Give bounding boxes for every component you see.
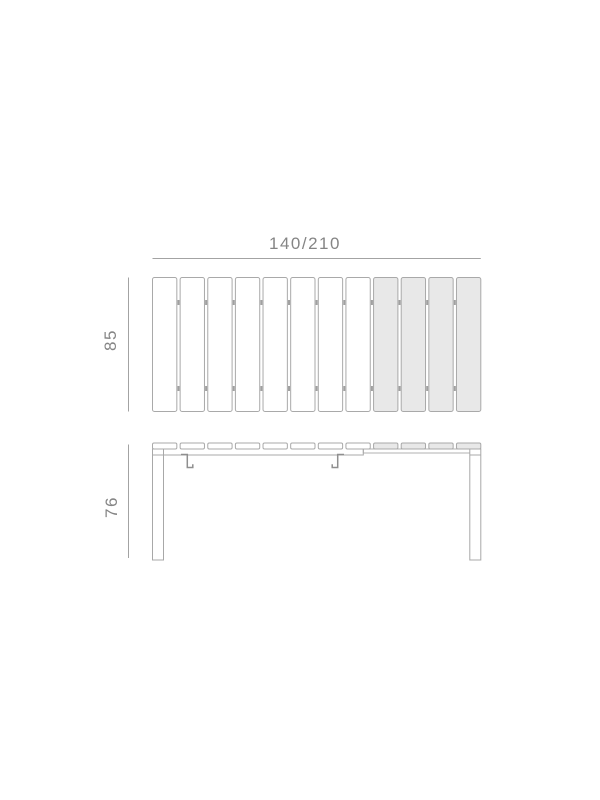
slat-fixed	[263, 443, 287, 449]
slat-joint-tick	[343, 386, 345, 391]
slat-joint-tick	[454, 386, 456, 391]
right-leg	[470, 449, 481, 560]
extension-rail	[363, 449, 470, 453]
left-leg	[153, 449, 164, 560]
slat-fixed	[318, 278, 342, 412]
slat-extension	[429, 443, 453, 449]
dimension-drawing	[0, 0, 600, 800]
slat-extension	[401, 278, 425, 412]
side-view-slat-edge	[153, 443, 481, 449]
slat-joint-tick	[316, 386, 318, 391]
slat-fixed	[235, 278, 259, 412]
slat-joint-tick	[399, 386, 401, 391]
slat-extension	[401, 443, 425, 449]
slat-fixed	[208, 443, 232, 449]
top-view-slats	[153, 278, 481, 412]
slat-joint-tick	[205, 386, 207, 391]
slat-joint-tick	[288, 386, 290, 391]
slat-fixed	[180, 278, 204, 412]
top-view	[129, 259, 481, 412]
latch-bracket-left	[181, 455, 193, 468]
slat-joint-tick	[399, 300, 401, 305]
slat-fixed	[153, 278, 177, 412]
slat-fixed	[291, 278, 315, 412]
slat-joint-tick	[454, 300, 456, 305]
slat-fixed	[153, 443, 177, 449]
slat-joint-tick	[260, 300, 262, 305]
slat-joint-tick	[426, 300, 428, 305]
table-apron-line	[163, 449, 363, 455]
slat-joint-tick	[205, 300, 207, 305]
side-view	[129, 443, 481, 560]
slat-joint-tick	[343, 300, 345, 305]
slat-extension	[374, 443, 398, 449]
slat-joint-tick	[288, 300, 290, 305]
diagram-canvas: 140/210 85 76	[0, 0, 600, 800]
slat-fixed	[235, 443, 259, 449]
slat-joint-tick	[260, 386, 262, 391]
slat-fixed	[180, 443, 204, 449]
slat-joint-tick	[426, 386, 428, 391]
slat-joint-tick	[316, 300, 318, 305]
slat-fixed	[291, 443, 315, 449]
slat-fixed	[318, 443, 342, 449]
slat-fixed	[346, 278, 370, 412]
slat-joint-tick	[371, 300, 373, 305]
latch-bracket-right	[332, 455, 344, 468]
slat-fixed	[263, 278, 287, 412]
slat-extension	[456, 443, 480, 449]
slat-fixed	[208, 278, 232, 412]
slat-joint-tick	[177, 386, 179, 391]
slat-extension	[429, 278, 453, 412]
slat-extension	[374, 278, 398, 412]
slat-joint-tick	[233, 300, 235, 305]
slat-extension	[456, 278, 480, 412]
slat-joint-tick	[371, 386, 373, 391]
slat-joint-tick	[233, 386, 235, 391]
slat-fixed	[346, 443, 370, 449]
slat-joint-tick	[177, 300, 179, 305]
